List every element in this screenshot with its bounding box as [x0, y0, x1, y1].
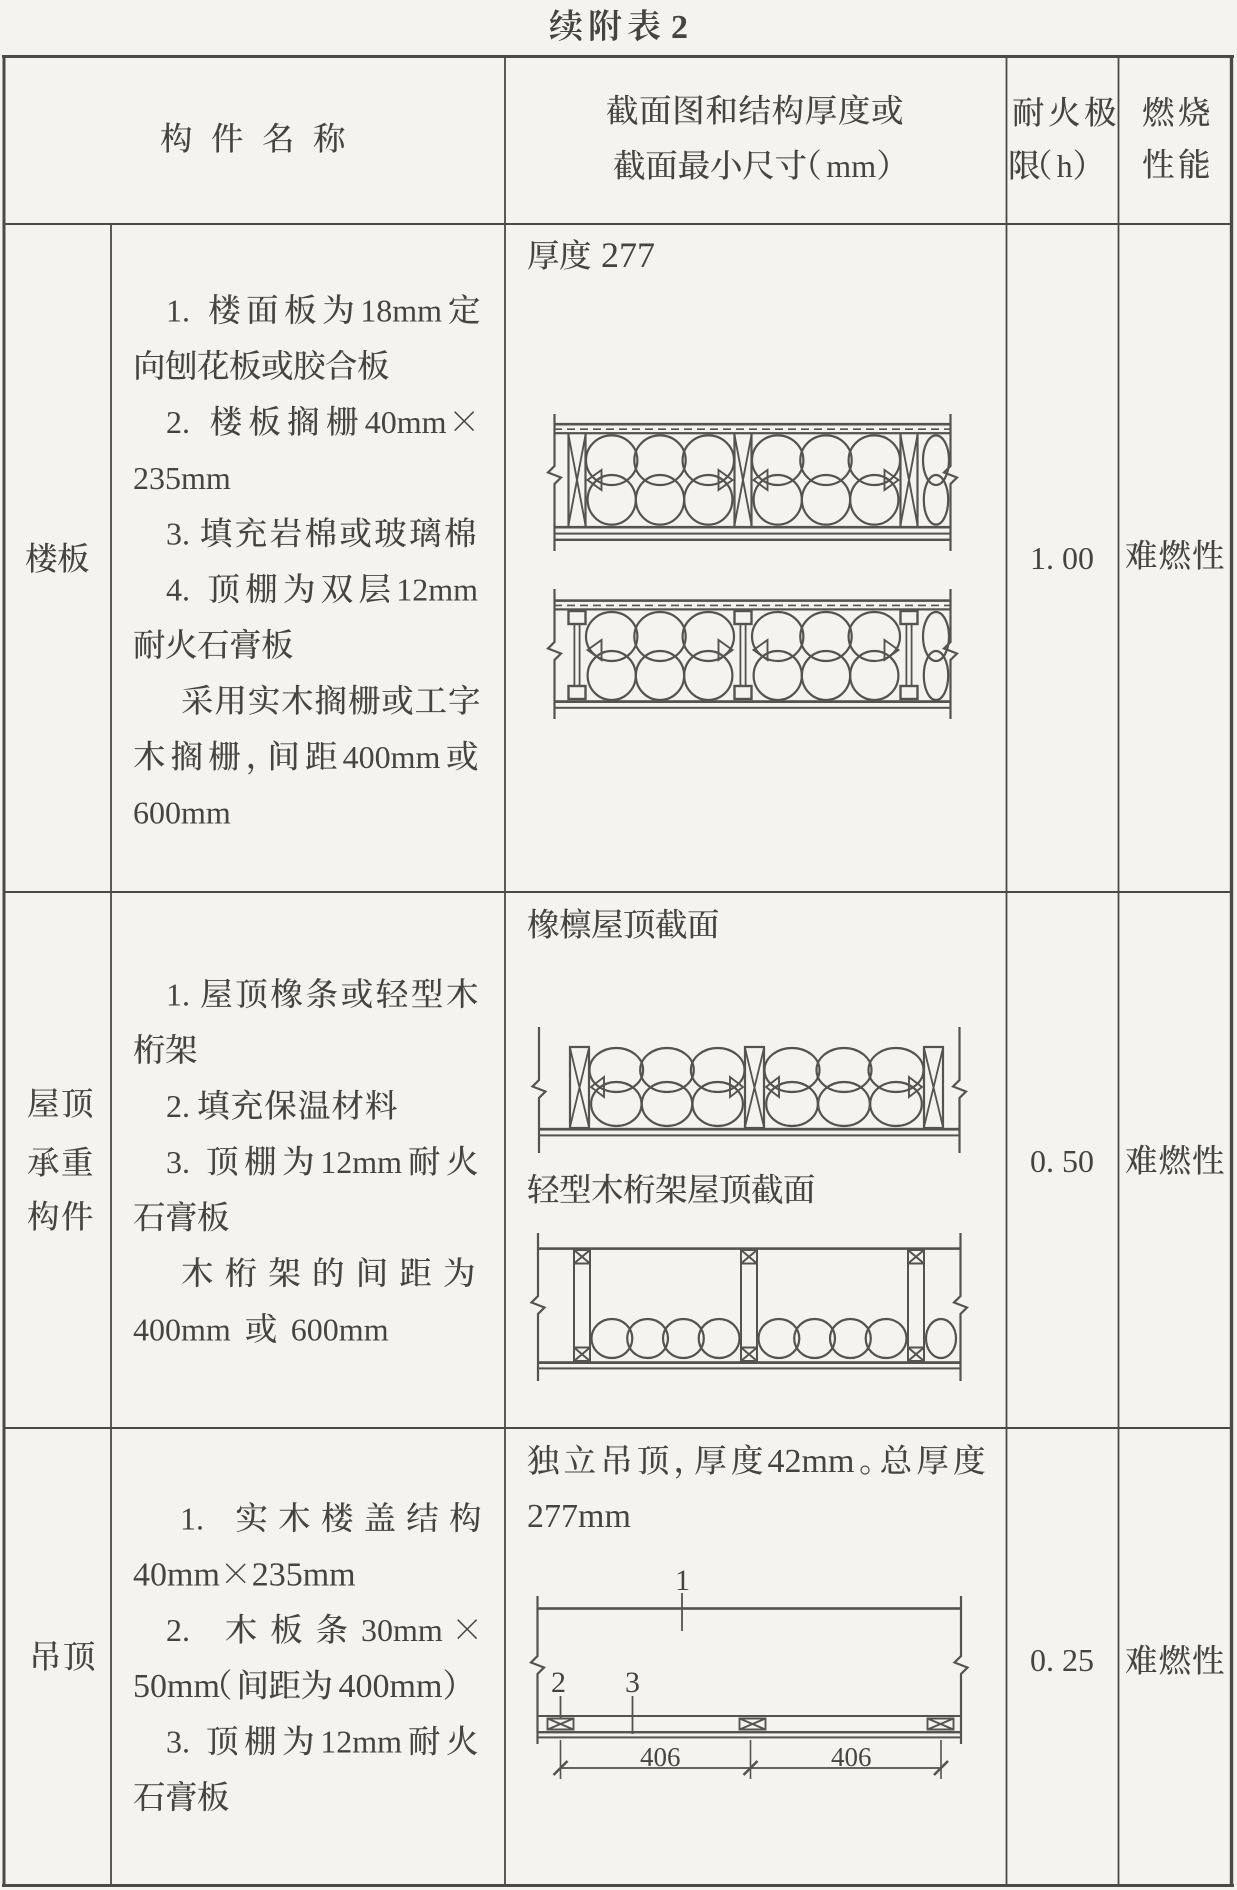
svg-text:50: 50 [1062, 1143, 1094, 1179]
svg-text:1.: 1. [166, 977, 190, 1013]
svg-text:2: 2 [551, 1666, 566, 1699]
svg-text:600mm: 600mm [291, 1311, 389, 1347]
svg-text:50mm: 50mm [133, 1668, 220, 1705]
svg-text:30mm: 30mm [361, 1612, 443, 1648]
svg-text:3.: 3. [166, 1144, 190, 1180]
svg-text:3.: 3. [166, 1724, 190, 1760]
svg-text:406: 406 [640, 1742, 681, 1772]
svg-text:12mm: 12mm [320, 1144, 402, 1180]
svg-text:18mm: 18mm [360, 293, 442, 329]
svg-text:4.: 4. [166, 572, 190, 608]
svg-text:1.: 1. [1030, 540, 1054, 576]
svg-text:2.: 2. [166, 1612, 190, 1648]
svg-text:2.: 2. [166, 404, 190, 440]
svg-text:277mm: 277mm [527, 1498, 631, 1535]
svg-text:40mm: 40mm [365, 404, 447, 440]
svg-text:40mm: 40mm [133, 1556, 220, 1593]
svg-text:2: 2 [671, 9, 688, 46]
svg-text:25: 25 [1062, 1642, 1094, 1678]
svg-text:mm: mm [826, 148, 876, 184]
svg-text:12mm: 12mm [396, 572, 478, 608]
svg-text:1.: 1. [180, 1501, 204, 1537]
svg-text:600mm: 600mm [133, 795, 231, 831]
svg-text:00: 00 [1062, 540, 1094, 576]
svg-text:400mm: 400mm [339, 1668, 443, 1705]
svg-text:400mm: 400mm [343, 739, 441, 775]
svg-text:0.: 0. [1030, 1143, 1054, 1179]
svg-text:3: 3 [625, 1666, 640, 1699]
svg-text:2.: 2. [166, 1088, 190, 1124]
svg-text:0.: 0. [1030, 1642, 1054, 1678]
svg-text:400mm: 400mm [133, 1311, 231, 1347]
svg-text:1.: 1. [166, 293, 190, 329]
svg-text:235mm: 235mm [252, 1556, 356, 1593]
svg-text:12mm: 12mm [320, 1724, 402, 1760]
svg-text:1: 1 [675, 1564, 690, 1597]
svg-text:406: 406 [831, 1742, 872, 1772]
svg-text:h: h [1057, 148, 1073, 184]
svg-text:235mm: 235mm [133, 460, 231, 496]
svg-text:42mm: 42mm [768, 1443, 855, 1480]
svg-text:3.: 3. [166, 516, 190, 552]
svg-text:277: 277 [601, 235, 655, 275]
